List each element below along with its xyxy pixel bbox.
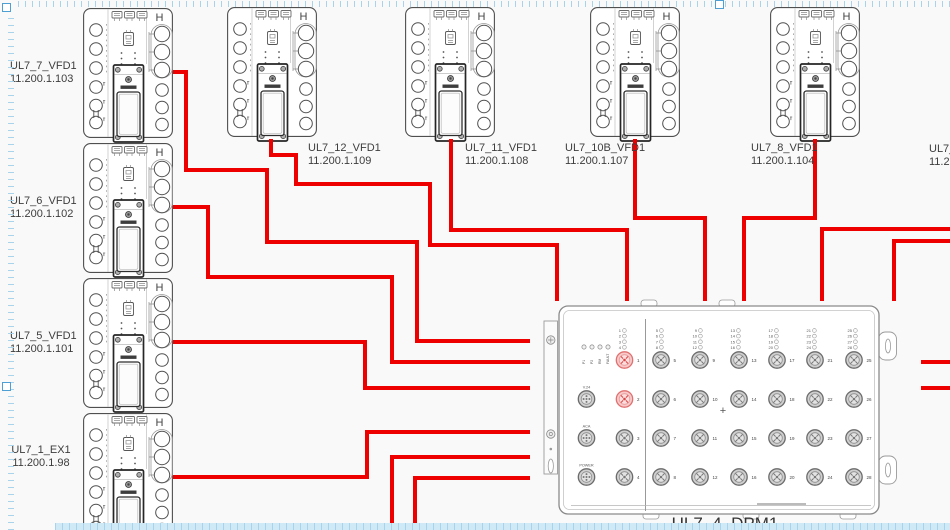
ruler-top xyxy=(18,1,950,7)
svg-text:ACA: ACA xyxy=(583,425,591,429)
ruler-left xyxy=(8,18,14,530)
svg-text:24: 24 xyxy=(828,475,834,480)
svg-text:23: 23 xyxy=(828,436,834,441)
svg-text:13: 13 xyxy=(731,328,736,333)
diagram-canvas[interactable]: H xyxy=(0,0,950,530)
device-label: UL7_11_VFD1 11.200.1.108 xyxy=(465,142,537,167)
svg-text:P2: P2 xyxy=(590,360,594,364)
svg-text:17: 17 xyxy=(790,358,796,363)
svg-text:15: 15 xyxy=(731,339,736,344)
svg-text:20: 20 xyxy=(769,345,774,350)
device-label: UL7_10B_VFD1 11.200.1.107 xyxy=(565,142,645,167)
selection-handle[interactable] xyxy=(2,3,11,12)
device-label: UL7_ 11.2 xyxy=(929,143,950,168)
svg-text:20: 20 xyxy=(790,475,796,480)
wire[interactable] xyxy=(173,342,530,388)
svg-text:11: 11 xyxy=(713,436,718,441)
device-label: UL7_5_VFD1 11.200.1.101 xyxy=(10,330,72,355)
wire[interactable] xyxy=(894,241,950,301)
svg-text:18: 18 xyxy=(790,397,796,402)
device-UL7_1_EX1[interactable] xyxy=(84,414,173,530)
ruler-bottom xyxy=(55,523,950,530)
svg-text:24: 24 xyxy=(807,345,812,350)
device-UL7_7_VFD1[interactable] xyxy=(84,9,173,142)
dpm-port[interactable] xyxy=(578,430,594,446)
svg-text:27: 27 xyxy=(848,339,853,344)
svg-text:12: 12 xyxy=(713,475,719,480)
svg-text:15: 15 xyxy=(752,436,758,441)
svg-text:16: 16 xyxy=(731,345,736,350)
svg-text:POWER: POWER xyxy=(579,464,594,468)
svg-text:23: 23 xyxy=(807,339,812,344)
device-UL7_10B_VFD1[interactable] xyxy=(591,8,680,141)
svg-text:14: 14 xyxy=(731,334,736,339)
svg-text:19: 19 xyxy=(790,436,796,441)
svg-text:27: 27 xyxy=(867,436,873,441)
svg-text:14: 14 xyxy=(752,397,758,402)
wire[interactable] xyxy=(392,457,530,530)
dpm-port[interactable] xyxy=(578,469,594,485)
wire[interactable] xyxy=(173,432,530,477)
svg-text:25: 25 xyxy=(867,358,873,363)
svg-text:25: 25 xyxy=(848,328,853,333)
svg-text:12: 12 xyxy=(693,345,698,350)
device-UL7_6_VFD1[interactable] xyxy=(84,144,173,277)
svg-text:V.24: V.24 xyxy=(583,386,590,390)
dpm-device[interactable]: P1P2RMFAULT12345678910111213141516171819… xyxy=(544,300,897,519)
svg-text:28: 28 xyxy=(848,345,853,350)
svg-text:P1: P1 xyxy=(582,360,586,364)
selection-handle[interactable] xyxy=(2,382,11,391)
svg-text:22: 22 xyxy=(807,334,812,339)
svg-text:17: 17 xyxy=(769,328,774,333)
device-label: UL7_1_EX1 11.200.1.98 xyxy=(10,444,72,469)
svg-text:18: 18 xyxy=(769,334,774,339)
svg-text:16: 16 xyxy=(752,475,758,480)
selection-handle[interactable] xyxy=(715,0,724,9)
svg-text:FAULT: FAULT xyxy=(606,354,610,364)
svg-text:21: 21 xyxy=(828,358,834,363)
svg-text:26: 26 xyxy=(867,397,873,402)
dpm-port[interactable] xyxy=(578,391,594,407)
svg-text:13: 13 xyxy=(752,358,758,363)
device-label: UL7_6_VFD1 11.200.1.102 xyxy=(10,195,72,220)
device-label: UL7_8_VFD1 11.200.1.104 xyxy=(751,142,818,167)
svg-text:RM: RM xyxy=(598,359,602,364)
svg-text:10: 10 xyxy=(693,334,698,339)
svg-text:+: + xyxy=(720,405,726,417)
device-UL7_8_VFD1[interactable] xyxy=(771,8,860,141)
wire[interactable] xyxy=(635,139,705,301)
svg-text:22: 22 xyxy=(828,397,834,402)
device-UL7_5_VFD1[interactable] xyxy=(84,279,173,412)
svg-text:19: 19 xyxy=(769,339,774,344)
device-label: UL7_7_VFD1 11.200.1.103 xyxy=(10,60,72,85)
device-label: UL7_12_VFD1 11.200.1.109 xyxy=(308,142,381,167)
diagram-graphics: H xyxy=(0,0,950,530)
device-UL7_12_VFD1[interactable] xyxy=(228,8,317,141)
svg-text:21: 21 xyxy=(807,328,812,333)
device-UL7_11_VFD1[interactable] xyxy=(406,8,495,141)
svg-text:10: 10 xyxy=(713,397,719,402)
svg-text:28: 28 xyxy=(867,475,873,480)
svg-text:26: 26 xyxy=(848,334,853,339)
